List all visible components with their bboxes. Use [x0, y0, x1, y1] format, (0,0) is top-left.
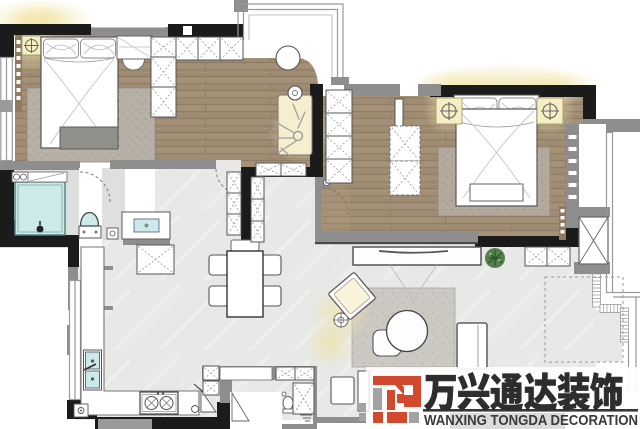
- svg-text:WANXING TONGDA DECORATION: WANXING TONGDA DECORATION: [424, 413, 638, 429]
